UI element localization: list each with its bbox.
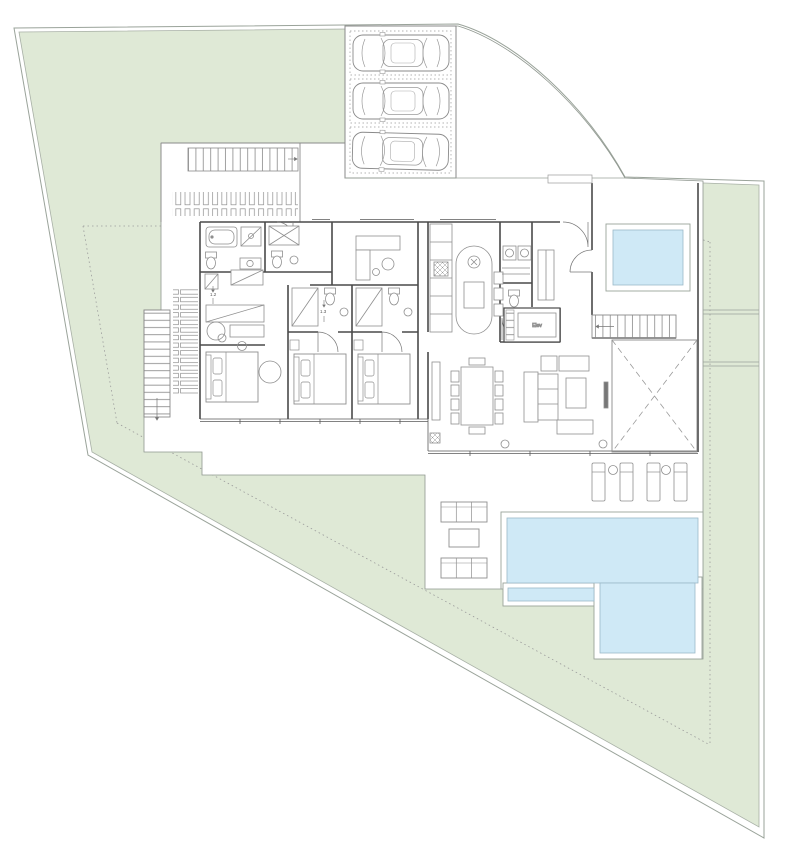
desk	[230, 325, 264, 337]
entry-pergola-louvers	[172, 192, 298, 216]
dim-label-hall: 1.3	[320, 309, 327, 314]
bar-stool-3	[494, 304, 503, 316]
bed-2	[294, 354, 346, 404]
armchair-1	[541, 356, 557, 371]
car-3	[352, 130, 449, 173]
toilet-4	[389, 288, 400, 305]
cooktop	[434, 262, 448, 276]
entry-mat	[548, 175, 592, 183]
main-pool-water-lower	[600, 583, 695, 653]
vanity	[240, 258, 261, 269]
car-1	[353, 33, 449, 74]
toilet-2	[272, 251, 283, 268]
nightstand-2	[354, 340, 363, 350]
outdoor-sofa-1	[441, 502, 487, 522]
entry-steps	[188, 148, 298, 171]
elevator-label: Elev	[532, 323, 542, 329]
floor-plan-page: Elev	[0, 0, 800, 845]
washer	[503, 246, 516, 260]
toilet-powder	[509, 290, 520, 307]
floor-plan-drawing: Elev	[0, 0, 800, 845]
sun-lounger-4	[674, 463, 687, 501]
armchair-2	[559, 356, 589, 371]
kitchen-island	[456, 246, 492, 334]
bar-stool-2	[494, 288, 503, 300]
console	[432, 362, 440, 420]
master-armchair	[259, 361, 281, 383]
plunge-pool	[606, 224, 690, 291]
main-pool-water-lap-strip	[508, 588, 594, 601]
bed-master	[206, 352, 258, 402]
column-box	[430, 433, 440, 443]
car-2	[353, 81, 449, 122]
nightstand-1	[290, 340, 299, 350]
poolside-table-2	[662, 466, 671, 475]
tv	[604, 382, 608, 408]
plunge-pool-water	[613, 230, 683, 285]
dining-table	[461, 367, 493, 425]
sofa-back	[524, 372, 538, 422]
outdoor-sofa-2	[441, 558, 487, 578]
poolside-table-1	[609, 466, 618, 475]
coffee-table	[566, 378, 586, 408]
dim-label-dressing: 1.2	[210, 292, 217, 297]
main-pool-water-upper	[507, 518, 698, 583]
toilet-3	[325, 288, 336, 305]
toilet-master	[206, 252, 217, 269]
bar-stool-1	[494, 272, 503, 284]
dryer	[518, 246, 531, 260]
bed-3	[358, 354, 410, 404]
outdoor-coffee-table	[449, 529, 479, 547]
sun-lounger-1	[592, 463, 605, 501]
west-louver-screen	[173, 289, 198, 395]
sun-lounger-2	[620, 463, 633, 501]
west-garden-stair	[144, 310, 170, 420]
sun-lounger-3	[647, 463, 660, 501]
bench	[557, 420, 593, 434]
